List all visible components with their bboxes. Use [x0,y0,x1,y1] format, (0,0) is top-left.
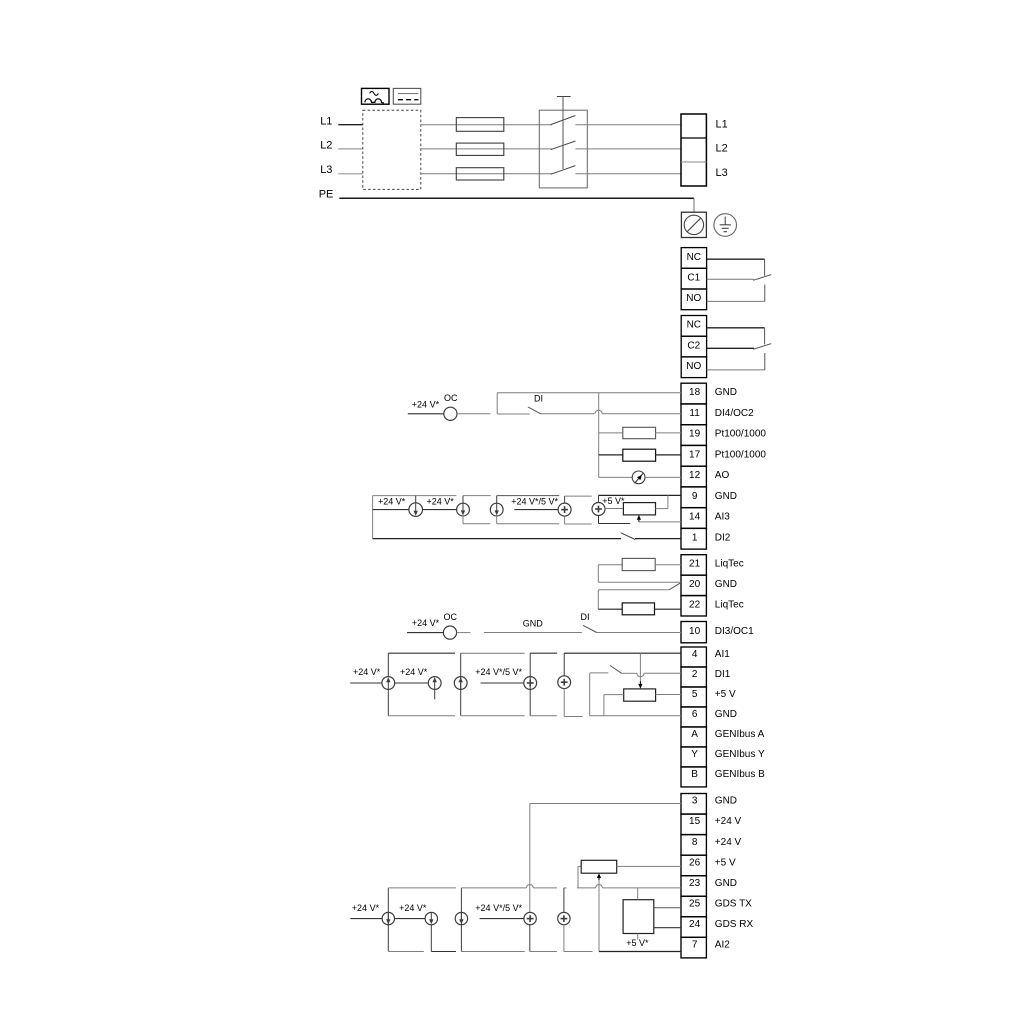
svg-text:+24 V*: +24 V* [399,903,427,913]
svg-text:19: 19 [689,429,701,440]
svg-text:NO: NO [686,361,701,372]
svg-text:7: 7 [692,940,698,951]
svg-text:LiqTec: LiqTec [715,559,744,570]
svg-text:NC: NC [687,320,701,331]
svg-text:A: A [691,729,698,740]
svg-text:DI: DI [534,394,543,404]
svg-text:GENIbus Y: GENIbus Y [715,749,765,760]
svg-text:OC: OC [444,393,458,403]
svg-text:L2: L2 [716,143,728,155]
svg-text:+5 V: +5 V [715,857,736,868]
svg-text:DI: DI [581,612,590,622]
svg-text:NO: NO [686,293,701,304]
svg-text:22: 22 [689,599,701,610]
svg-text:11: 11 [689,408,700,419]
svg-text:21: 21 [689,559,701,570]
svg-text:AI3: AI3 [715,512,730,523]
svg-text:+24 V*: +24 V* [352,903,380,913]
svg-text:24: 24 [689,919,701,930]
svg-text:10: 10 [689,626,701,637]
svg-text:+24 V*: +24 V* [427,497,455,507]
svg-text:L3: L3 [716,167,728,179]
svg-text:GENIbus B: GENIbus B [715,769,765,780]
svg-text:B: B [691,769,698,780]
svg-text:8: 8 [692,837,698,848]
svg-text:DI2: DI2 [715,532,731,543]
svg-text:OC: OC [444,612,458,622]
svg-text:GENIbus A: GENIbus A [715,729,765,740]
svg-text:23: 23 [689,878,701,889]
svg-text:L1: L1 [716,118,728,130]
svg-text:GND: GND [715,387,737,398]
svg-text:+24 V*/5 V*: +24 V*/5 V* [475,903,522,913]
svg-text:18: 18 [689,387,701,398]
svg-text:+24 V*: +24 V* [378,497,406,507]
svg-text:26: 26 [689,857,701,868]
svg-text:GND: GND [715,579,737,590]
svg-text:25: 25 [689,898,701,909]
svg-text:DI3/OC1: DI3/OC1 [715,626,754,637]
svg-text:AI2: AI2 [715,940,730,951]
svg-text:+5 V*: +5 V* [626,938,649,948]
svg-text:GDS RX: GDS RX [715,919,754,930]
svg-text:+24 V*: +24 V* [353,667,381,677]
svg-text:20: 20 [689,579,701,590]
svg-text:LiqTec: LiqTec [715,599,744,610]
svg-text:+24 V: +24 V [715,837,742,848]
svg-text:GDS TX: GDS TX [715,898,752,909]
svg-text:1: 1 [692,532,698,543]
svg-text:5: 5 [692,689,698,700]
svg-text:Y: Y [691,749,698,760]
svg-text:L2: L2 [320,140,332,152]
svg-text:+24 V*/5 V*: +24 V*/5 V* [475,667,522,677]
svg-text:GND: GND [523,618,544,628]
svg-text:+24 V*/5 V*: +24 V*/5 V* [511,497,558,507]
svg-text:+5 V: +5 V [715,689,736,700]
svg-text:+24 V*: +24 V* [412,400,440,410]
svg-text:PE: PE [319,189,334,201]
svg-text:C2: C2 [687,340,700,351]
svg-text:17: 17 [689,449,701,460]
svg-text:AI1: AI1 [715,649,730,660]
svg-text:14: 14 [689,512,701,523]
svg-text:DI4/OC2: DI4/OC2 [715,408,754,419]
svg-text:15: 15 [689,816,701,827]
svg-text:+24 V*: +24 V* [412,618,440,628]
svg-text:NC: NC [687,252,701,263]
svg-text:4: 4 [692,649,698,660]
svg-text:9: 9 [692,491,698,502]
svg-text:L1: L1 [320,115,332,127]
svg-text:+24 V*: +24 V* [400,667,428,677]
svg-text:6: 6 [692,709,698,720]
svg-text:2: 2 [692,669,698,680]
svg-text:GND: GND [715,796,737,807]
svg-text:+24 V: +24 V [715,816,742,827]
svg-text:Pt100/1000: Pt100/1000 [715,429,767,440]
svg-text:AO: AO [715,470,730,481]
svg-text:+5 V*: +5 V* [602,496,625,506]
svg-text:C1: C1 [687,272,700,283]
svg-text:GND: GND [715,878,737,889]
svg-text:3: 3 [692,796,698,807]
svg-text:Pt100/1000: Pt100/1000 [715,449,767,460]
svg-text:GND: GND [715,491,737,502]
svg-text:GND: GND [715,709,737,720]
svg-text:DI1: DI1 [715,669,731,680]
svg-text:12: 12 [689,470,701,481]
svg-text:L3: L3 [320,164,332,176]
